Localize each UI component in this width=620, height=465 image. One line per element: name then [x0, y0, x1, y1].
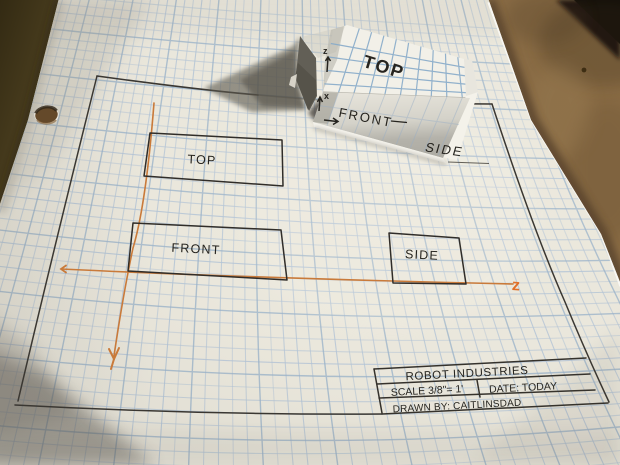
svg-text:FRONT: FRONT	[171, 241, 221, 258]
svg-text:SIDE: SIDE	[405, 247, 440, 263]
svg-text:z: z	[511, 277, 520, 295]
svg-text:z: z	[323, 46, 328, 56]
svg-text:x: x	[324, 91, 329, 101]
svg-text:TOP: TOP	[187, 152, 217, 168]
